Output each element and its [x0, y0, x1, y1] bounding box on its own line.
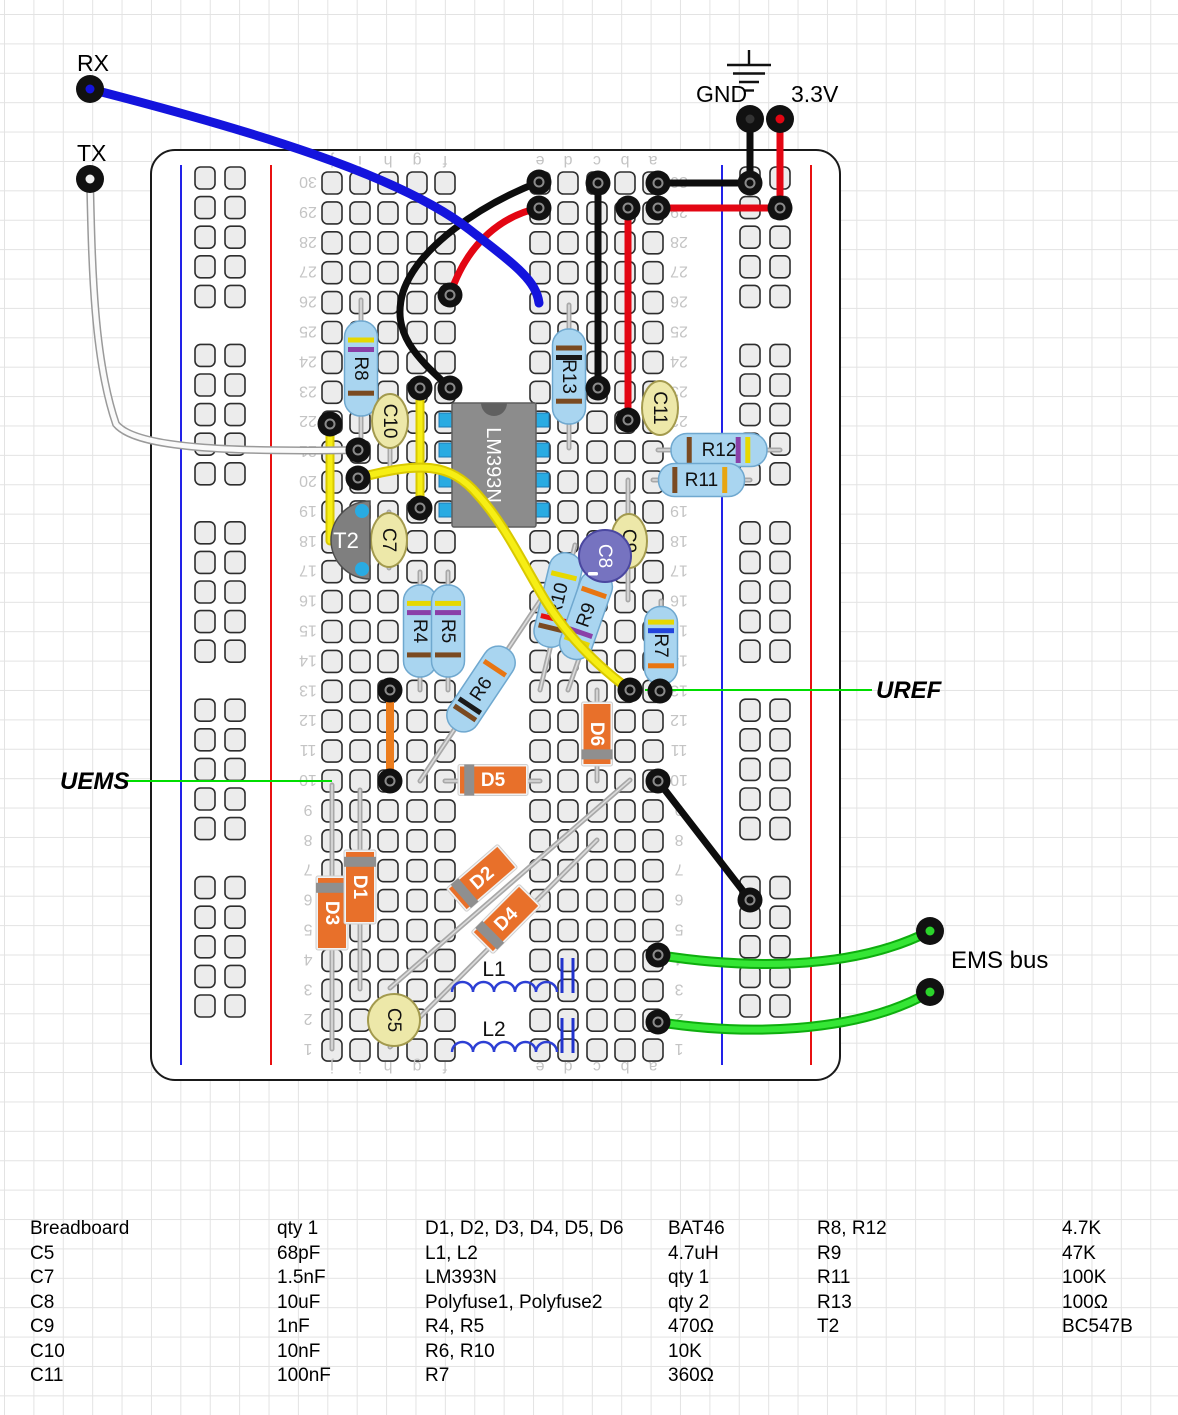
svg-text:18: 18 [670, 532, 688, 549]
parts-cell: R4, R5 [425, 1316, 484, 1338]
svg-text:f: f [442, 1058, 447, 1075]
svg-text:8: 8 [303, 831, 312, 848]
v33-pin [766, 105, 794, 133]
svg-text:7: 7 [303, 861, 312, 878]
parts-cell: R9 [817, 1243, 841, 1265]
component-C8: C8 [579, 530, 631, 582]
svg-text:f: f [442, 152, 447, 169]
svg-text:13: 13 [299, 681, 317, 698]
svg-text:17: 17 [670, 562, 688, 579]
parts-cell: 4.7K [1062, 1218, 1101, 1240]
svg-text:a: a [648, 1058, 657, 1075]
svg-text:c: c [593, 152, 601, 169]
svg-text:1: 1 [303, 1040, 312, 1057]
svg-text:3: 3 [674, 980, 683, 997]
svg-text:26: 26 [670, 293, 688, 310]
svg-text:h: h [384, 1058, 393, 1075]
svg-text:9: 9 [303, 801, 312, 818]
parts-cell: 100Ω [1062, 1292, 1108, 1314]
parts-cell: 10K [668, 1341, 702, 1363]
breadboard-diagram: 1122334455667788991010111112121313141415… [0, 0, 1178, 1415]
svg-text:26: 26 [299, 293, 317, 310]
parts-cell: Breadboard [30, 1218, 129, 1240]
svg-text:b: b [620, 152, 629, 169]
svg-text:4: 4 [303, 950, 312, 967]
svg-text:g: g [413, 152, 422, 169]
component-C7: C7 [371, 512, 407, 568]
parts-cell: C8 [30, 1292, 54, 1314]
parts-cell: 68pF [277, 1243, 320, 1265]
component-R5: R5 [432, 572, 465, 690]
svg-text:15: 15 [299, 622, 317, 639]
parts-cell: qty 1 [668, 1267, 709, 1289]
component-R12: R12 [658, 434, 780, 467]
svg-text:D6: D6 [586, 722, 607, 746]
parts-cell: T2 [817, 1316, 839, 1338]
parts-cell: qty 1 [277, 1218, 318, 1240]
svg-text:d: d [564, 152, 573, 169]
svg-text:g: g [413, 1058, 422, 1075]
svg-text:C11: C11 [649, 391, 670, 424]
svg-text:27: 27 [670, 263, 688, 280]
svg-text:C7: C7 [378, 528, 399, 552]
svg-text:28: 28 [299, 233, 317, 250]
svg-text:17: 17 [299, 562, 317, 579]
svg-text:a: a [648, 152, 657, 169]
parts-cell: BC547B [1062, 1316, 1133, 1338]
svg-text:16: 16 [299, 592, 317, 609]
svg-text:R7: R7 [650, 633, 671, 657]
svg-text:20: 20 [299, 472, 317, 489]
svg-text:R12: R12 [702, 440, 737, 461]
svg-text:8: 8 [674, 831, 683, 848]
svg-text:1: 1 [674, 1040, 683, 1057]
svg-text:6: 6 [303, 891, 312, 908]
component-R11: R11 [653, 464, 750, 497]
ems-pin-2 [916, 978, 944, 1006]
uems-label: UEMS [60, 768, 129, 796]
svg-text:C5: C5 [383, 1008, 404, 1032]
svg-text:D5: D5 [481, 770, 506, 791]
svg-text:14: 14 [299, 651, 317, 668]
parts-cell: R11 [817, 1267, 850, 1289]
svg-text:12: 12 [670, 711, 688, 728]
svg-text:10: 10 [670, 771, 688, 788]
uref-label: UREF [876, 677, 941, 705]
parts-cell: R8, R12 [817, 1218, 887, 1240]
svg-text:C10: C10 [379, 404, 400, 439]
parts-cell: 4.7uH [668, 1243, 719, 1265]
component-D5: D5 [445, 765, 540, 796]
svg-text:b: b [620, 1058, 629, 1075]
component-R7: R7 [645, 601, 678, 690]
gnd-label: GND [696, 81, 747, 108]
svg-text:j: j [330, 1058, 335, 1075]
svg-text:R11: R11 [685, 470, 718, 491]
parts-cell: LM393N [425, 1267, 497, 1289]
ems-pin-1 [916, 917, 944, 945]
svg-text:C8: C8 [594, 544, 615, 568]
svg-text:R5: R5 [437, 619, 458, 643]
svg-text:16: 16 [670, 592, 688, 609]
svg-text:T2: T2 [333, 528, 359, 553]
svg-text:R4: R4 [409, 619, 430, 644]
parts-cell: 470Ω [668, 1316, 714, 1338]
svg-text:23: 23 [299, 382, 317, 399]
svg-text:D3: D3 [321, 901, 342, 925]
parts-cell: qty 2 [668, 1292, 709, 1314]
parts-cell: R6, R10 [425, 1341, 495, 1363]
svg-text:24: 24 [299, 352, 317, 369]
svg-text:28: 28 [670, 233, 688, 250]
parts-cell: 10uF [277, 1292, 320, 1314]
svg-text:h: h [384, 152, 393, 169]
parts-cell: C9 [30, 1316, 54, 1338]
parts-cell: BAT46 [668, 1218, 725, 1240]
svg-text:11: 11 [671, 741, 688, 758]
svg-text:c: c [593, 1058, 601, 1075]
svg-text:24: 24 [670, 352, 688, 369]
parts-cell: 360Ω [668, 1365, 714, 1387]
svg-text:L1: L1 [482, 958, 505, 981]
svg-text:e: e [535, 1058, 544, 1075]
svg-text:e: e [535, 152, 544, 169]
svg-text:22: 22 [299, 412, 317, 429]
svg-text:D1: D1 [349, 875, 370, 900]
parts-cell: 100nF [277, 1365, 331, 1387]
parts-cell: L1, L2 [425, 1243, 478, 1265]
svg-text:27: 27 [299, 263, 317, 280]
parts-cell: Polyfuse1, Polyfuse2 [425, 1292, 602, 1314]
tx-label: TX [77, 140, 106, 167]
svg-text:L2: L2 [482, 1018, 505, 1041]
svg-text:25: 25 [670, 323, 688, 340]
ems-bus-label: EMS bus [951, 947, 1048, 975]
parts-cell: 47K [1062, 1243, 1096, 1265]
parts-cell: 1.5nF [277, 1267, 326, 1289]
svg-text:19: 19 [299, 502, 317, 519]
component-C5: C5 [368, 994, 420, 1046]
svg-text:6: 6 [674, 891, 683, 908]
svg-text:R8: R8 [350, 356, 371, 380]
parts-cell: C11 [30, 1365, 63, 1387]
parts-cell: C5 [30, 1243, 54, 1265]
rx-label: RX [77, 50, 109, 77]
svg-text:11: 11 [300, 741, 317, 758]
breadboard-schematic-page: 1122334455667788991010111112121313141415… [0, 0, 1178, 1415]
gnd-pin [736, 105, 764, 133]
parts-cell: C7 [30, 1267, 54, 1289]
parts-cell: R13 [817, 1292, 852, 1314]
svg-text:19: 19 [670, 502, 688, 519]
svg-text:2: 2 [303, 1010, 312, 1027]
svg-text:10: 10 [299, 771, 317, 788]
svg-text:3: 3 [303, 980, 312, 997]
svg-text:i: i [358, 1058, 362, 1075]
parts-cell: C10 [30, 1341, 65, 1363]
svg-text:d: d [564, 1058, 573, 1075]
parts-cell: R7 [425, 1365, 449, 1387]
component-C11: C11 [642, 381, 678, 435]
svg-text:LM393N: LM393N [482, 427, 504, 503]
svg-text:18: 18 [299, 532, 317, 549]
parts-cell: 10nF [277, 1341, 320, 1363]
tx-pin [76, 165, 104, 193]
parts-cell: 100K [1062, 1267, 1106, 1289]
svg-text:12: 12 [299, 711, 317, 728]
svg-text:30: 30 [299, 173, 317, 190]
svg-text:5: 5 [674, 921, 683, 938]
v33-label: 3.3V [791, 81, 838, 108]
svg-text:25: 25 [299, 323, 317, 340]
parts-cell: D1, D2, D3, D4, D5, D6 [425, 1218, 624, 1240]
rx-pin [76, 75, 104, 103]
svg-text:29: 29 [299, 203, 317, 220]
svg-text:7: 7 [674, 861, 683, 878]
svg-text:5: 5 [303, 921, 312, 938]
svg-text:R13: R13 [558, 359, 579, 394]
parts-cell: 1nF [277, 1316, 310, 1338]
